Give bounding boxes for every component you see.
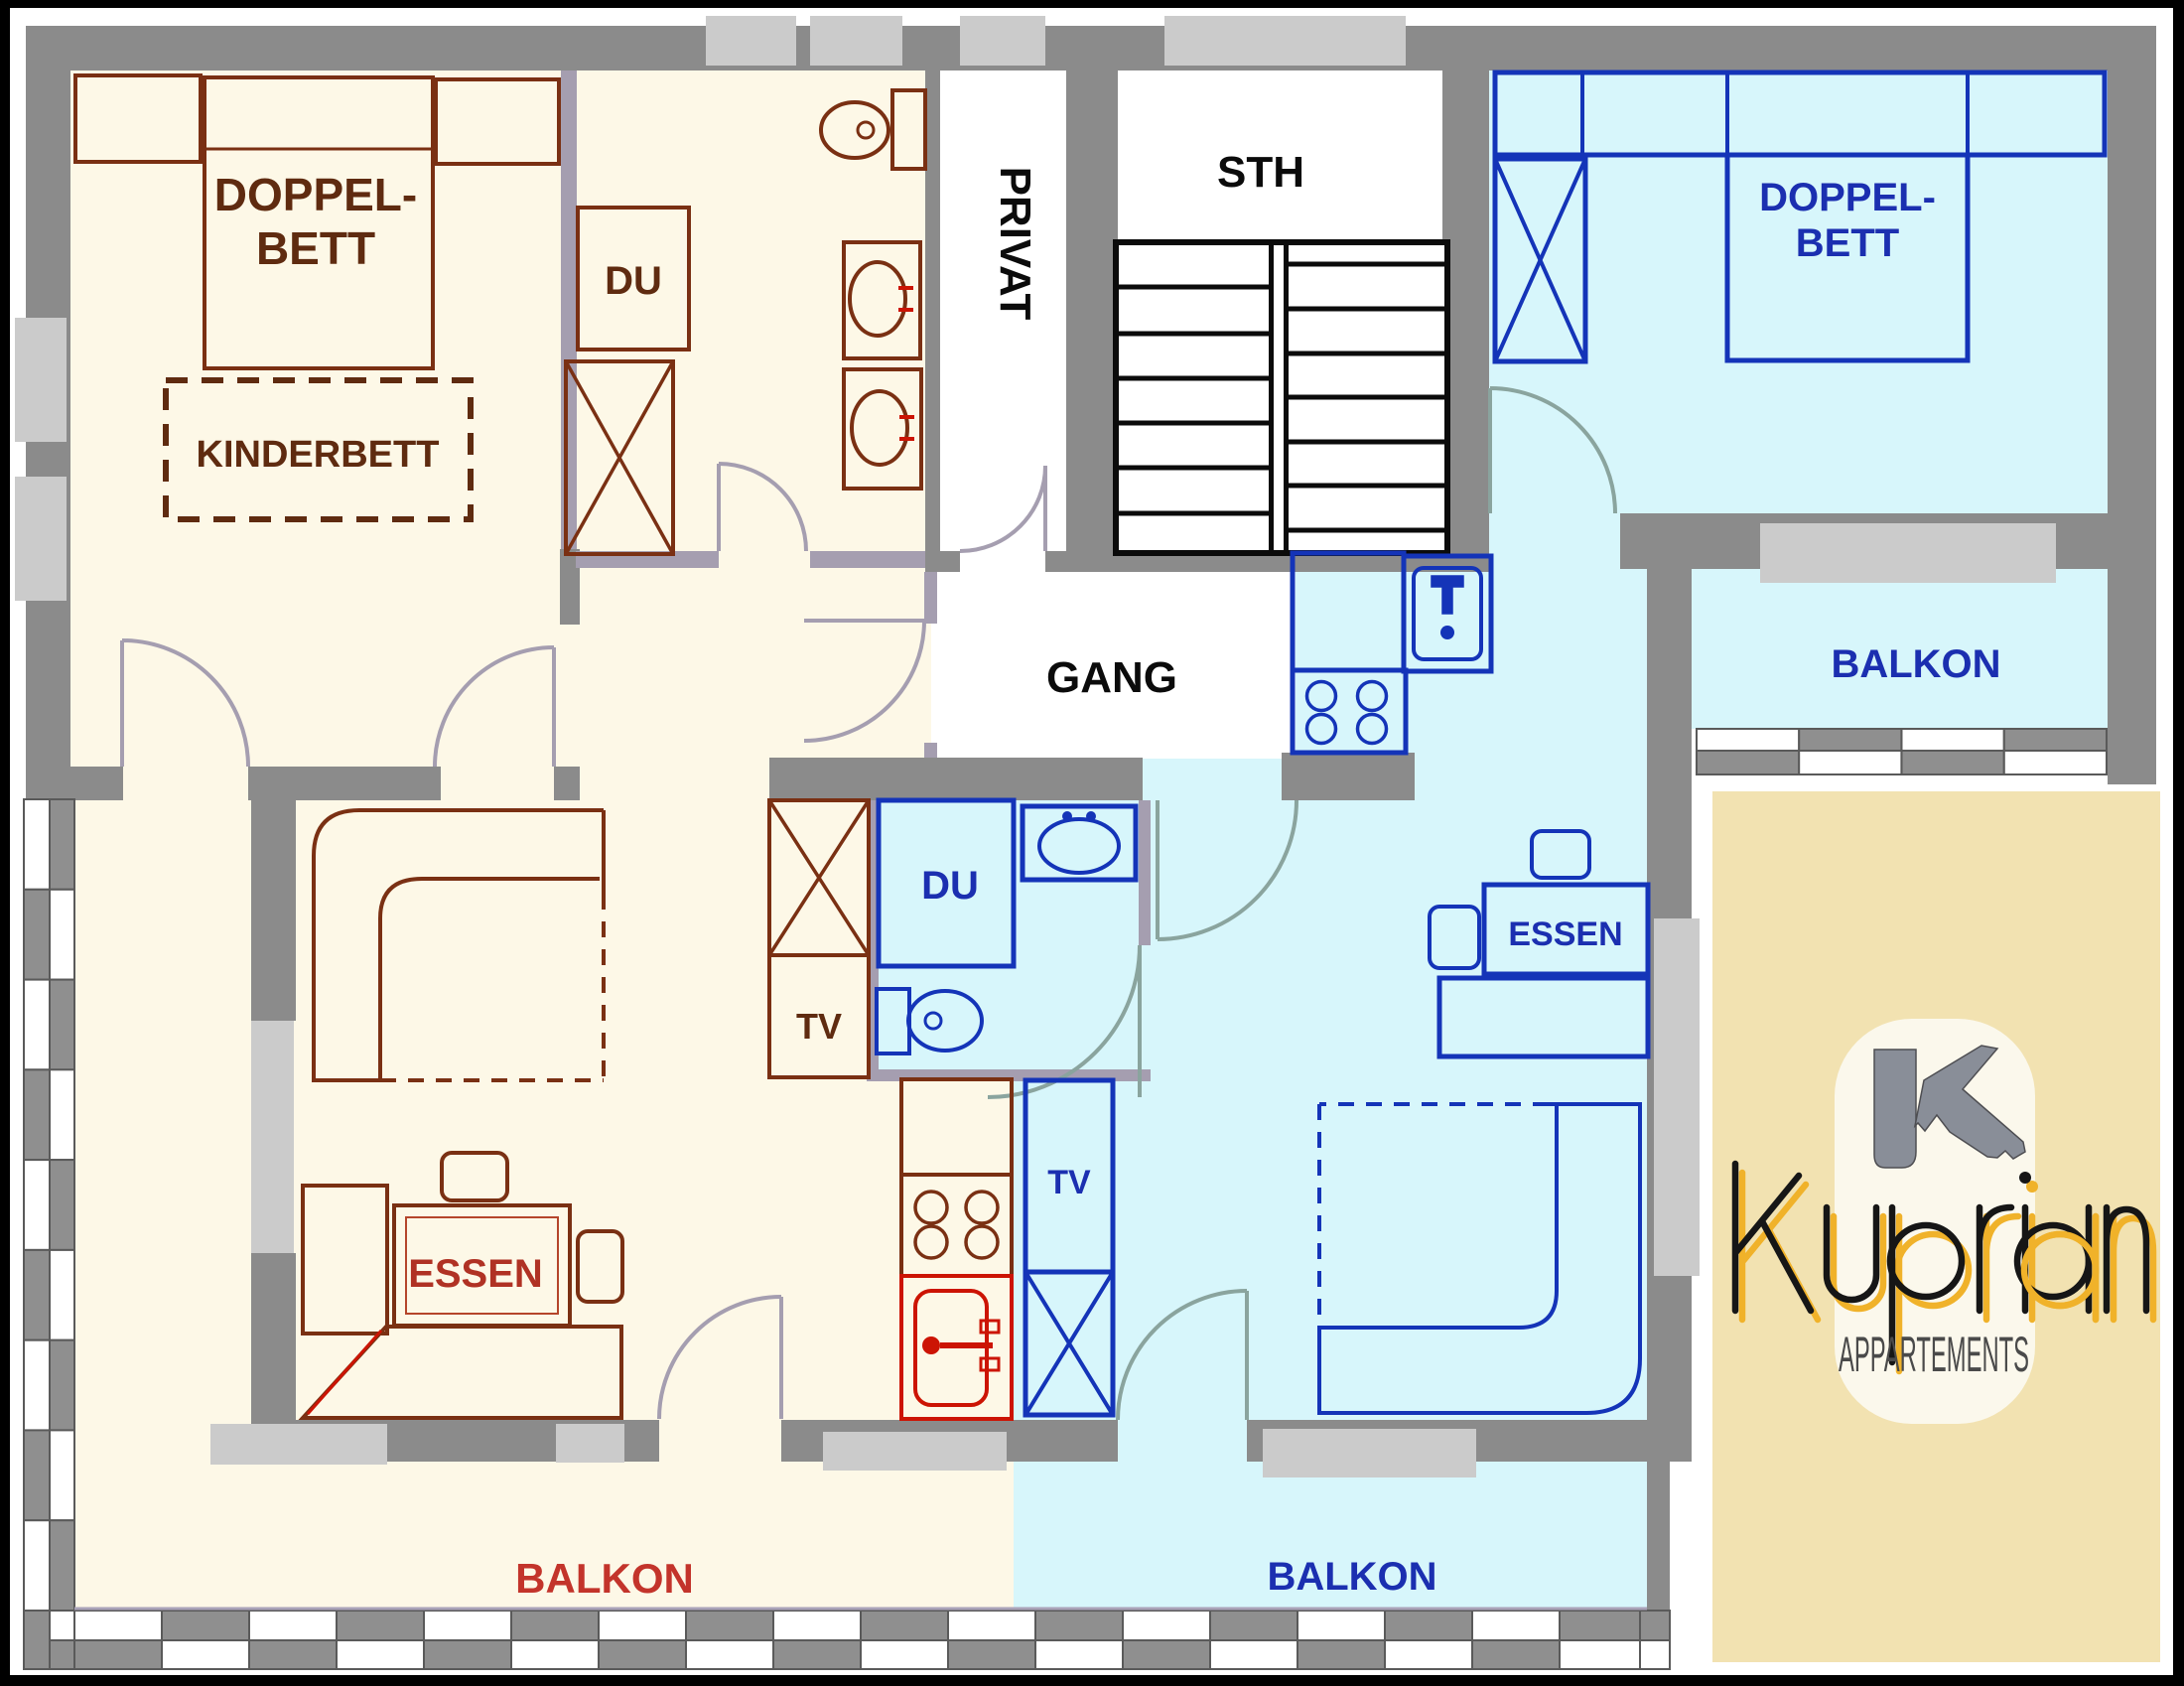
svg-text:TV: TV	[1047, 1164, 1091, 1201]
svg-text:TV: TV	[796, 1006, 842, 1047]
svg-text:DOPPEL-: DOPPEL-	[214, 169, 417, 220]
svg-text:BALKON: BALKON	[515, 1555, 694, 1602]
svg-text:BETT: BETT	[1796, 221, 1899, 265]
svg-text:KINDERBETT: KINDERBETT	[197, 434, 440, 476]
svg-text:BALKON: BALKON	[1267, 1555, 1436, 1599]
svg-text:DU: DU	[921, 864, 979, 908]
svg-text:DU: DU	[605, 259, 662, 303]
svg-text:ESSEN: ESSEN	[1508, 915, 1622, 953]
svg-text:DOPPEL-: DOPPEL-	[1759, 176, 1936, 219]
svg-text:APPARTEMENTS: APPARTEMENTS	[1839, 1327, 2029, 1382]
svg-text:BALKON: BALKON	[1831, 642, 2000, 686]
svg-text:BETT: BETT	[256, 222, 375, 274]
svg-text:GANG: GANG	[1046, 653, 1177, 702]
svg-text:STH: STH	[1217, 148, 1304, 197]
svg-text:PRIVAT: PRIVAT	[991, 167, 1039, 321]
svg-text:ESSEN: ESSEN	[408, 1252, 543, 1296]
